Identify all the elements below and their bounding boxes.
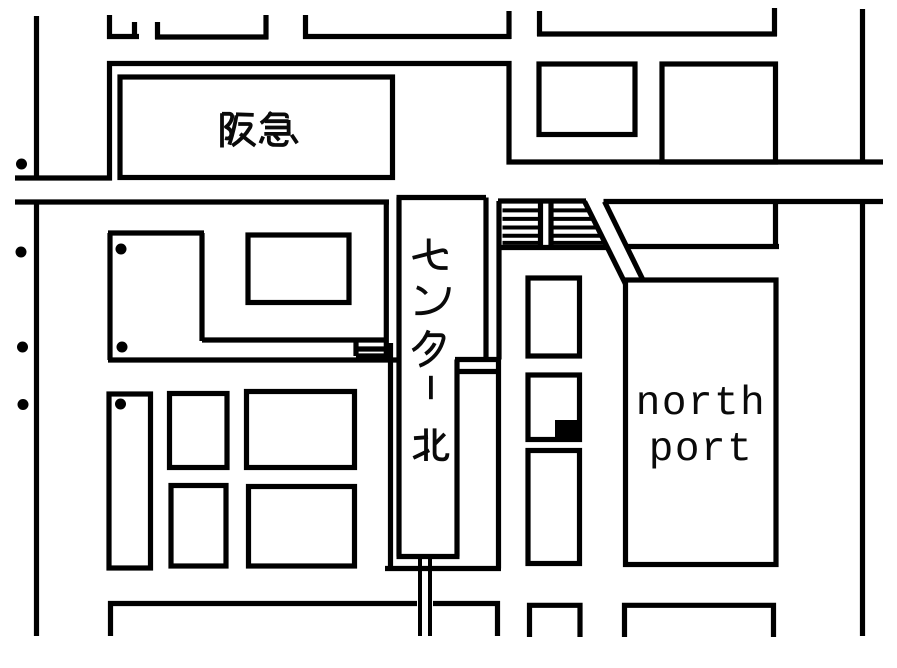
svg-text:north: north — [636, 381, 767, 427]
svg-text:port: port — [649, 427, 753, 473]
